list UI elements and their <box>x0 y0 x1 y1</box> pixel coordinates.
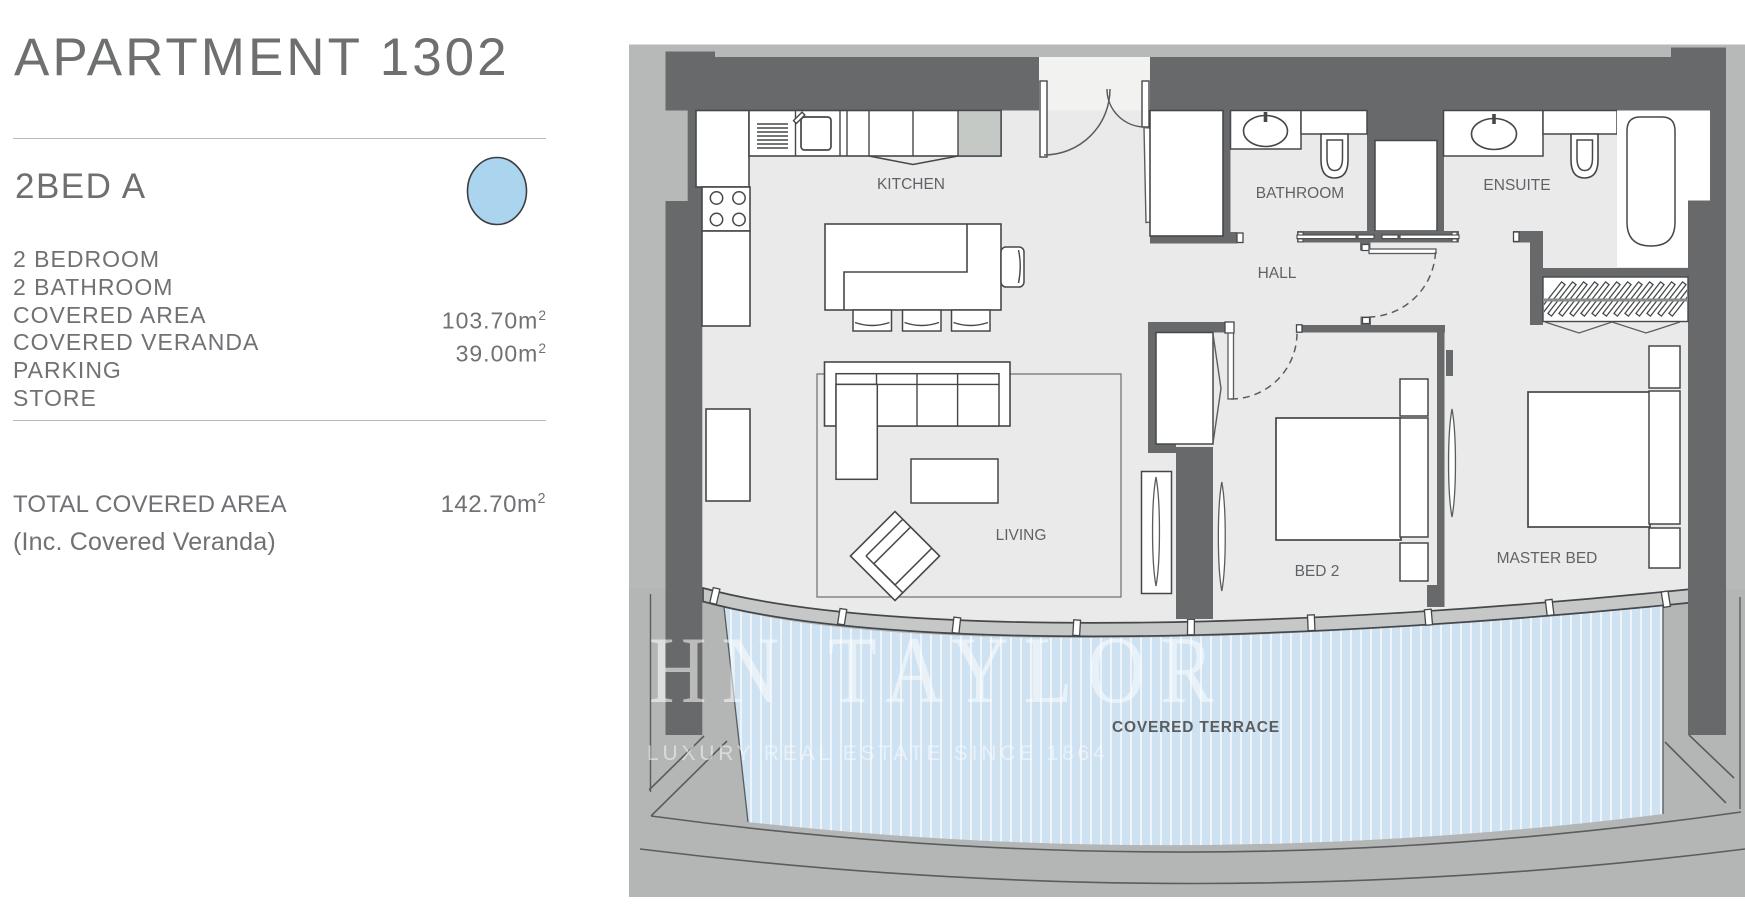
svg-text:ENSUITE: ENSUITE <box>1483 177 1550 194</box>
svg-text:KITCHEN: KITCHEN <box>877 176 945 193</box>
svg-text:HALL: HALL <box>1258 265 1297 282</box>
svg-text:LIVING: LIVING <box>996 527 1047 544</box>
svg-text:BED 2: BED 2 <box>1295 563 1340 580</box>
svg-text:COVERED TERRACE: COVERED TERRACE <box>1112 719 1280 736</box>
svg-text:BATHROOM: BATHROOM <box>1256 185 1344 202</box>
svg-text:LUXURY REAL ESTATE SINCE 1864: LUXURY REAL ESTATE SINCE 1864 <box>647 742 1109 765</box>
svg-text:MASTER BED: MASTER BED <box>1497 550 1598 567</box>
